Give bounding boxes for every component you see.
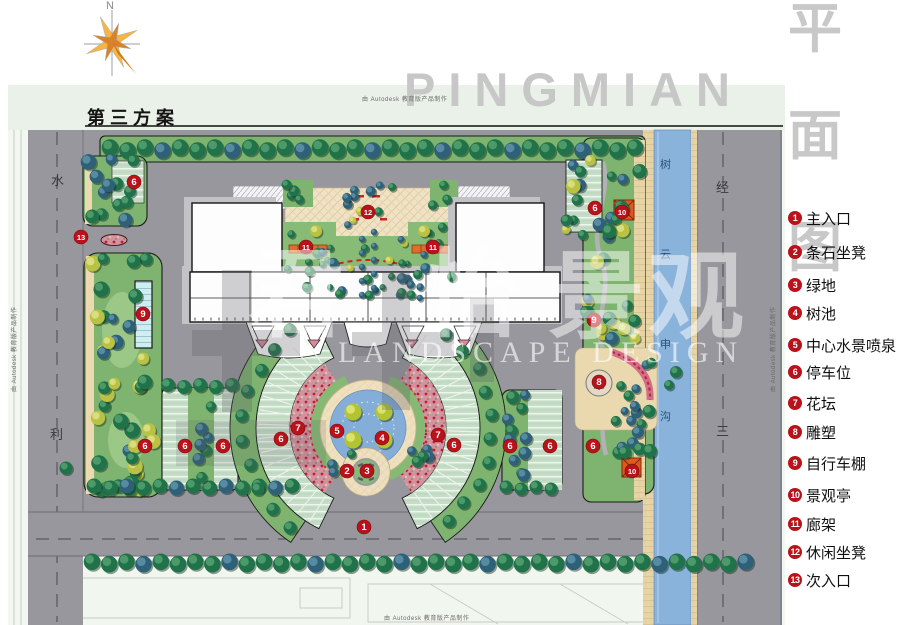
legend-item-13: 13次入口 [788, 571, 851, 589]
plan-badge-5: 5 [330, 424, 344, 438]
river-char: 沟 [660, 408, 671, 424]
plan-badge-2: 2 [340, 464, 354, 478]
brand-watermark-char: 君 [248, 248, 344, 344]
legend-badge: 11 [788, 517, 802, 531]
autodesk-watermark: 由 Autodesk 教育版产品制作 [362, 94, 447, 103]
plan-badge-6: 6 [503, 439, 517, 453]
svg-text:6: 6 [278, 434, 283, 445]
plan-badge-6: 6 [588, 201, 602, 215]
brand-watermark-char: 景 [548, 250, 644, 346]
svg-text:6: 6 [131, 177, 136, 188]
legend-badge: 2 [788, 245, 802, 259]
road-label-shui: 水 [51, 170, 64, 189]
plan-badge-7: 7 [431, 428, 445, 442]
svg-text:9: 9 [140, 309, 145, 320]
legend-item-10: 10景观亭 [788, 486, 851, 504]
legend-item-5: 5中心水景喷泉 [788, 336, 896, 354]
legend-item-4: 4树池 [788, 304, 836, 322]
legend-badge: 3 [788, 278, 802, 292]
legend-badge: 1 [788, 211, 802, 225]
svg-text:6: 6 [547, 441, 552, 452]
brand-watermark-char: 怡 [424, 248, 520, 344]
svg-text:6: 6 [142, 441, 147, 452]
svg-text:10: 10 [628, 467, 636, 476]
road-label-li: 利 [50, 424, 63, 443]
autodesk-watermark: 由 Autodesk 教育版产品制作 [9, 307, 18, 392]
legend-label: 廊架 [806, 514, 836, 535]
svg-text:6: 6 [592, 203, 597, 214]
legend-item-9: 9自行车棚 [788, 454, 866, 472]
plan-badge-6: 6 [127, 175, 141, 189]
legend: 1主入口2条石坐凳3绿地4树池5中心水景喷泉6停车位7花坛8雕塑9自行车棚10景… [786, 0, 900, 625]
svg-text:10: 10 [618, 208, 626, 217]
legend-item-7: 7花坛 [788, 394, 836, 412]
svg-text:12: 12 [364, 208, 372, 217]
legend-label: 花坛 [806, 393, 836, 414]
legend-label: 景观亭 [806, 485, 851, 506]
autodesk-watermark: 由 Autodesk 教育版产品制作 [768, 307, 777, 392]
legend-label: 条石坐凳 [806, 242, 866, 263]
road-label-san: 三 [716, 421, 729, 440]
plan-badge-12: 12 [361, 205, 375, 219]
plan-badge-6: 6 [138, 439, 152, 453]
plan-badge-8: 8 [592, 375, 606, 389]
plan-badge-6: 6 [274, 432, 288, 446]
legend-label: 绿地 [806, 275, 836, 296]
road-label-jing: 经 [716, 177, 729, 196]
legend-badge: 7 [788, 396, 802, 410]
svg-text:4: 4 [379, 433, 385, 444]
river-char: 树 [660, 156, 671, 172]
legend-badge: 8 [788, 425, 802, 439]
svg-text:6: 6 [182, 441, 187, 452]
legend-item-8: 8雕塑 [788, 423, 836, 441]
legend-label: 树池 [806, 303, 836, 324]
plan-badge-6: 6 [216, 439, 230, 453]
legend-item-11: 11廊架 [788, 515, 836, 533]
svg-text:8: 8 [596, 377, 601, 388]
plan-badge-10: 10 [625, 464, 639, 478]
legend-label: 中心水景喷泉 [806, 335, 896, 356]
plan-badge-1: 1 [357, 520, 371, 534]
legend-label: 自行车棚 [806, 453, 866, 474]
svg-text:5: 5 [334, 426, 340, 437]
plan-badge-7: 7 [291, 421, 305, 435]
svg-text:6: 6 [507, 441, 512, 452]
legend-label: 休闲坐凳 [806, 542, 866, 563]
pingmian-watermark: PINGMIAN [404, 62, 743, 117]
legend-label: 停车位 [806, 362, 851, 383]
legend-label: 雕塑 [806, 422, 836, 443]
plan-badge-9: 9 [136, 307, 150, 321]
entry-flower-bed [101, 235, 127, 246]
bottom-road [28, 512, 658, 556]
legend-item-3: 3绿地 [788, 276, 836, 294]
plan-badge-6: 6 [586, 439, 600, 453]
legend-item-12: 12休闲坐凳 [788, 543, 866, 561]
legend-badge: 13 [788, 573, 802, 587]
plan-sheet: 12345666666666677899101011111213 N 第三方案 … [0, 0, 900, 625]
autodesk-watermark: 由 Autodesk 教育版产品制作 [384, 613, 469, 622]
legend-badge: 4 [788, 306, 802, 320]
svg-text:6: 6 [451, 440, 456, 451]
compass-icon [84, 10, 140, 76]
plan-badge-10: 10 [615, 205, 629, 219]
svg-text:13: 13 [77, 233, 85, 242]
plan-badge-13: 13 [74, 230, 88, 244]
svg-text:6: 6 [590, 441, 595, 452]
svg-text:7: 7 [435, 430, 440, 441]
plan-badge-6: 6 [178, 439, 192, 453]
compass-north-label: N [106, 0, 114, 12]
page-title: 第三方案 [87, 104, 179, 130]
svg-text:2: 2 [344, 466, 349, 477]
plan-badge-6: 6 [543, 439, 557, 453]
legend-badge: 5 [788, 338, 802, 352]
brand-watermark-latin: LANDSCAPE DESIGN [338, 336, 744, 370]
svg-text:1: 1 [361, 522, 367, 533]
legend-label: 次入口 [806, 570, 851, 591]
plan-badge-6: 6 [447, 438, 461, 452]
legend-badge: 9 [788, 456, 802, 470]
plan-badge-3: 3 [360, 464, 374, 478]
svg-text:3: 3 [364, 466, 369, 477]
svg-text:7: 7 [295, 423, 300, 434]
legend-item-6: 6停车位 [788, 363, 851, 381]
legend-badge: 10 [788, 488, 802, 502]
legend-item-2: 2条石坐凳 [788, 243, 866, 261]
plan-badge-4: 4 [375, 431, 389, 445]
brand-watermark-char: 观 [648, 250, 744, 346]
legend-label: 主入口 [806, 208, 851, 229]
legend-badge: 12 [788, 545, 802, 559]
legend-badge: 6 [788, 365, 802, 379]
svg-text:6: 6 [220, 441, 225, 452]
legend-item-1: 1主入口 [788, 209, 851, 227]
